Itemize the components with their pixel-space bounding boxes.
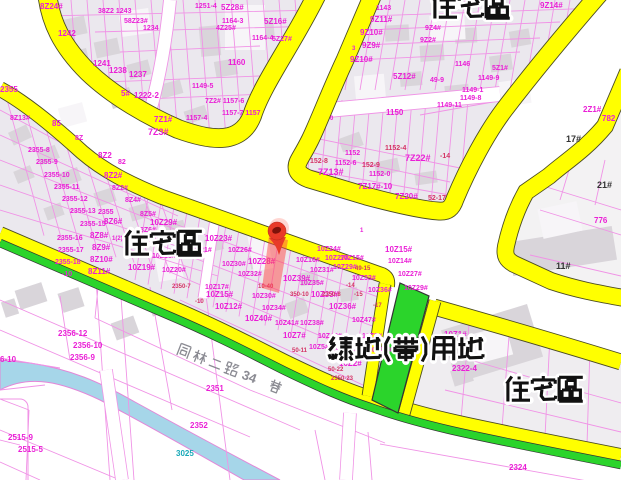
svg-text:7Z2# 1157-6: 7Z2# 1157-6: [205, 98, 244, 105]
svg-text:1149-11: 1149-11: [437, 102, 462, 109]
svg-text:50-11: 50-11: [292, 348, 308, 354]
svg-text:2351: 2351: [206, 384, 224, 393]
svg-text:2Z1#: 2Z1#: [583, 105, 602, 114]
svg-text:10Z31#: 10Z31#: [310, 267, 334, 274]
svg-text:-14: -14: [440, 153, 450, 160]
svg-text:2355-8: 2355-8: [28, 147, 50, 154]
svg-text:52-17: 52-17: [428, 195, 446, 202]
svg-text:782: 782: [602, 114, 616, 123]
svg-text:9Z10#: 9Z10#: [360, 28, 383, 37]
svg-text:7Z17#-10: 7Z17#-10: [358, 182, 393, 191]
svg-text:10Z14#: 10Z14#: [388, 258, 412, 265]
svg-text:49-15: 49-15: [355, 266, 371, 272]
svg-text:2356-12: 2356-12: [58, 329, 88, 338]
svg-text:10Z36#: 10Z36#: [329, 302, 357, 311]
svg-text:5Z12#: 5Z12#: [393, 72, 416, 81]
svg-text:2356-9: 2356-9: [70, 353, 95, 362]
svg-text:1149-9: 1149-9: [478, 75, 500, 82]
svg-text:1251-4: 1251-4: [195, 3, 217, 10]
svg-text:17#: 17#: [566, 134, 581, 144]
svg-text:9Z2#: 9Z2#: [420, 37, 436, 44]
svg-text:1152-6: 1152-6: [335, 160, 357, 167]
svg-text:5Z28#: 5Z28#: [221, 3, 244, 12]
svg-text:2515-9: 2515-9: [8, 433, 33, 442]
svg-text:2515-5: 2515-5: [18, 445, 43, 454]
svg-text:10Z15#: 10Z15#: [340, 255, 364, 262]
svg-text:1149-1: 1149-1: [462, 87, 484, 94]
svg-text:10Z7#: 10Z7#: [283, 331, 306, 340]
svg-text:4Z25#: 4Z25#: [216, 25, 236, 32]
svg-text:10Z30#: 10Z30#: [252, 293, 276, 300]
svg-text:1149-5: 1149-5: [192, 83, 214, 90]
svg-text:10Z41#: 10Z41#: [275, 320, 299, 327]
svg-text:5Z1#: 5Z1#: [492, 65, 508, 72]
svg-text:9Z4#: 9Z4#: [425, 25, 441, 32]
svg-text:2355: 2355: [0, 85, 18, 94]
svg-text:1(2): 1(2): [112, 236, 123, 242]
svg-text:9Z14#: 9Z14#: [540, 1, 563, 10]
svg-text:1222-2: 1222-2: [134, 91, 159, 100]
svg-text:38Z2 1243: 38Z2 1243: [98, 8, 132, 15]
svg-text:2355-9: 2355-9: [36, 159, 58, 166]
svg-text:2322-4: 2322-4: [452, 364, 477, 373]
svg-text:152-8: 152-8: [310, 158, 328, 165]
svg-text:6-10: 6-10: [0, 355, 17, 364]
svg-text:7Z1#: 7Z1#: [154, 115, 173, 124]
svg-text:7Z3#: 7Z3#: [148, 127, 169, 137]
svg-text:10Z29#: 10Z29#: [150, 218, 178, 227]
svg-text:1242: 1242: [58, 29, 76, 38]
svg-text:8Z13#: 8Z13#: [10, 115, 30, 122]
svg-text:21#: 21#: [597, 180, 612, 190]
svg-text:10Z35#: 10Z35#: [300, 280, 324, 287]
svg-text:8Z24#: 8Z24#: [40, 2, 63, 11]
svg-text:-17: -17: [373, 303, 382, 309]
svg-text:10Z19#: 10Z19#: [128, 263, 156, 272]
svg-text:85: 85: [52, 119, 61, 128]
svg-text:10Z17#: 10Z17#: [205, 284, 229, 291]
svg-text:2352: 2352: [190, 421, 208, 430]
svg-text:2355-12: 2355-12: [62, 196, 88, 203]
svg-text:1234: 1234: [143, 25, 159, 32]
svg-text:2355-13: 2355-13: [70, 208, 96, 215]
svg-text:10Z36#: 10Z36#: [368, 287, 392, 294]
svg-text:1152: 1152: [345, 150, 360, 157]
svg-text:9Z9#: 9Z9#: [362, 41, 381, 50]
svg-text:7Z13#: 7Z13#: [318, 167, 344, 177]
svg-text:10Z33#: 10Z33#: [352, 275, 376, 282]
svg-text:10Z30#: 10Z30#: [222, 261, 246, 268]
svg-text:8Z2#: 8Z2#: [104, 171, 123, 180]
svg-text:2350-23: 2350-23: [331, 376, 354, 382]
svg-text:8Z8#: 8Z8#: [90, 231, 109, 240]
svg-text:2350-7: 2350-7: [172, 284, 191, 290]
svg-text:5Z16#: 5Z16#: [264, 17, 287, 26]
svg-text:1157-7 1157: 1157-7 1157: [222, 110, 261, 117]
svg-text:1149-8: 1149-8: [460, 95, 482, 102]
svg-text:11#: 11#: [556, 261, 571, 271]
svg-text:10Z26#: 10Z26#: [228, 247, 252, 254]
svg-text:10Z27#: 10Z27#: [398, 271, 422, 278]
svg-text:1164-3: 1164-3: [222, 18, 244, 25]
svg-text:10Z38#: 10Z38#: [300, 320, 324, 327]
svg-text:350-10: 350-10: [290, 292, 309, 298]
svg-text:2324: 2324: [509, 463, 527, 472]
svg-text:7Z22#: 7Z22#: [405, 153, 431, 163]
svg-text:8Z10#: 8Z10#: [90, 255, 113, 264]
svg-text:-14: -14: [346, 283, 355, 289]
svg-text:1146: 1146: [455, 61, 470, 68]
svg-text:1160: 1160: [228, 58, 246, 67]
svg-text:9Z11#: 9Z11#: [370, 15, 393, 24]
svg-text:8Z4#: 8Z4#: [125, 197, 141, 204]
svg-text:5#: 5#: [121, 89, 130, 98]
svg-text:2355: 2355: [98, 209, 114, 216]
svg-text:3025: 3025: [176, 449, 194, 458]
svg-text:10Z20#: 10Z20#: [162, 267, 186, 274]
svg-text:7Z20#: 7Z20#: [395, 192, 418, 201]
svg-text:8Z2#: 8Z2#: [112, 185, 128, 192]
svg-text:10Z12#: 10Z12#: [215, 302, 243, 311]
svg-text:10Z40#: 10Z40#: [245, 314, 273, 323]
svg-text:8Z: 8Z: [75, 135, 84, 142]
svg-text:152-9: 152-9: [362, 162, 380, 169]
svg-text:10Z47#: 10Z47#: [352, 317, 376, 324]
svg-text:1237: 1237: [129, 70, 147, 79]
svg-text:10Z29#: 10Z29#: [404, 285, 428, 292]
svg-text:10Z15#: 10Z15#: [206, 290, 234, 299]
svg-text:50-22: 50-22: [328, 367, 344, 373]
svg-text:58Z23#: 58Z23#: [124, 18, 148, 25]
svg-text:2355-17: 2355-17: [58, 247, 84, 254]
svg-text:8Z2: 8Z2: [98, 151, 112, 160]
svg-text:8Z5#: 8Z5#: [140, 211, 156, 218]
svg-text:1143: 1143: [376, 5, 391, 12]
svg-text:8Z6#: 8Z6#: [104, 217, 123, 226]
svg-text:-10: -10: [195, 299, 204, 305]
svg-text:10Z15#: 10Z15#: [385, 245, 413, 254]
svg-text:9Z10#: 9Z10#: [350, 55, 373, 64]
svg-text:2355-15: 2355-15: [80, 221, 106, 228]
svg-text:776: 776: [594, 216, 608, 225]
svg-text:-15: -15: [354, 292, 363, 298]
svg-text:2350-8: 2350-8: [322, 292, 341, 298]
svg-text:10Z24#: 10Z24#: [317, 246, 341, 253]
svg-text:2355-18: 2355-18: [55, 259, 81, 266]
svg-text:5Z27#: 5Z27#: [272, 36, 292, 43]
svg-text:10Z16#: 10Z16#: [296, 257, 320, 264]
svg-text:10Z34#: 10Z34#: [262, 305, 286, 312]
svg-text:1150: 1150: [386, 108, 404, 117]
svg-text:1238: 1238: [109, 66, 127, 75]
svg-text:2355-11: 2355-11: [54, 184, 79, 191]
svg-text:1164-4: 1164-4: [252, 35, 274, 42]
svg-text:8Z9#: 8Z9#: [92, 243, 111, 252]
svg-text:10Z29#: 10Z29#: [333, 264, 357, 271]
svg-text:2356-10: 2356-10: [73, 341, 103, 350]
svg-text:1152-0: 1152-0: [369, 171, 391, 178]
svg-text:2355-10: 2355-10: [44, 172, 70, 179]
svg-text:10Z32#: 10Z32#: [238, 271, 262, 278]
svg-text:8Z11#: 8Z11#: [88, 267, 111, 276]
svg-text:82: 82: [118, 159, 126, 166]
svg-text:49-9: 49-9: [430, 77, 444, 84]
svg-text:1152-4: 1152-4: [385, 145, 407, 152]
svg-text:1157-4: 1157-4: [186, 115, 208, 122]
svg-text:2355-16: 2355-16: [57, 235, 83, 242]
svg-text:10Z23#: 10Z23#: [205, 234, 233, 243]
svg-text:-10: -10: [62, 271, 72, 278]
